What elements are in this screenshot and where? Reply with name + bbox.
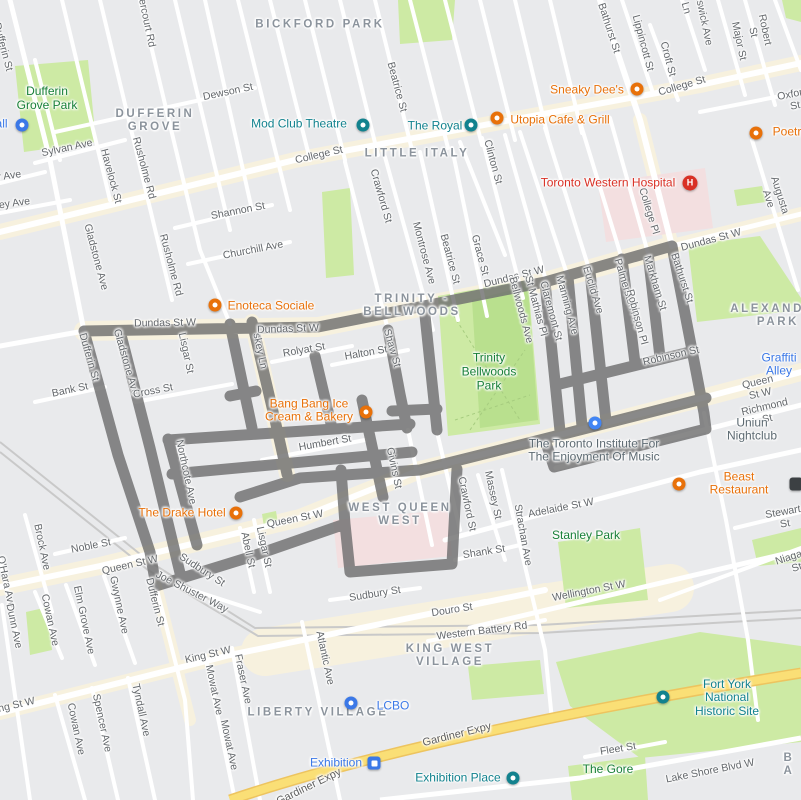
poi-label-lcbo[interactable]: LCBO xyxy=(377,699,410,712)
sneaky-dees-icon[interactable] xyxy=(631,83,644,96)
poi-label-dufferin-mall[interactable]: Dufferin Mall xyxy=(0,117,8,130)
poetry-icon[interactable] xyxy=(750,127,763,140)
beast-restaurant-icon[interactable] xyxy=(673,478,686,491)
poi-label-bang-bang-ice-cream[interactable]: Bang Bang Ice Cream & Bakery xyxy=(265,398,353,425)
exhibition-station-icon[interactable] xyxy=(368,757,381,770)
mod-club-theatre-icon[interactable] xyxy=(357,119,370,132)
dufferin-mall-icon[interactable] xyxy=(16,119,29,132)
poi-label-toronto-western-hospital[interactable]: Toronto Western Hospital xyxy=(541,176,676,189)
lcbo-icon[interactable] xyxy=(345,697,358,710)
poi-label-the-royal[interactable]: The Royal xyxy=(408,119,463,132)
exhibition-place-icon[interactable] xyxy=(507,772,520,785)
poi-label-fort-york[interactable]: Fort York National Historic Site xyxy=(690,678,764,718)
poi-label-uniun-nightclub[interactable]: Uniun Nightclub xyxy=(727,417,777,444)
poi-label-beast-restaurant[interactable]: Beast Restaurant xyxy=(708,471,770,498)
the-royal-icon[interactable] xyxy=(465,119,478,132)
the-drake-hotel-icon[interactable] xyxy=(230,507,243,520)
poi-label-utopia-cafe-grill[interactable]: Utopia Cafe & Grill xyxy=(510,113,609,126)
enoteca-sociale-icon[interactable] xyxy=(209,299,222,312)
utopia-cafe-grill-icon[interactable] xyxy=(491,112,504,125)
poi-label-enoteca-sociale[interactable]: Enoteca Sociale xyxy=(228,299,315,312)
toronto-institute-music-icon[interactable] xyxy=(589,417,602,430)
partial-poi-icon-icon[interactable] xyxy=(790,478,801,491)
poi-label-sneaky-dees[interactable]: Sneaky Dee's xyxy=(550,83,624,96)
fort-york-icon[interactable] xyxy=(657,691,670,704)
basemap-graphics xyxy=(0,0,801,800)
poi-label-exhibition-station[interactable]: Exhibition xyxy=(310,756,362,769)
poi-label-mod-club-theatre[interactable]: Mod Club Theatre xyxy=(251,117,347,130)
poi-label-the-drake-hotel[interactable]: The Drake Hotel xyxy=(138,506,225,519)
map-canvas[interactable]: BICKFORD PARKDUFFERIN GROVELITTLE ITALYT… xyxy=(0,0,801,800)
bang-bang-ice-cream-icon[interactable] xyxy=(360,406,373,419)
poi-label-exhibition-place[interactable]: Exhibition Place xyxy=(415,771,500,784)
toronto-western-hospital-icon[interactable] xyxy=(683,176,698,191)
poi-label-poetry[interactable]: Poetry xyxy=(773,125,801,138)
poi-label-graffiti-alley[interactable]: Graffiti Alley xyxy=(761,352,796,379)
poi-label-toronto-institute-music[interactable]: The Toronto Institute For The Enjoyment … xyxy=(528,438,659,465)
